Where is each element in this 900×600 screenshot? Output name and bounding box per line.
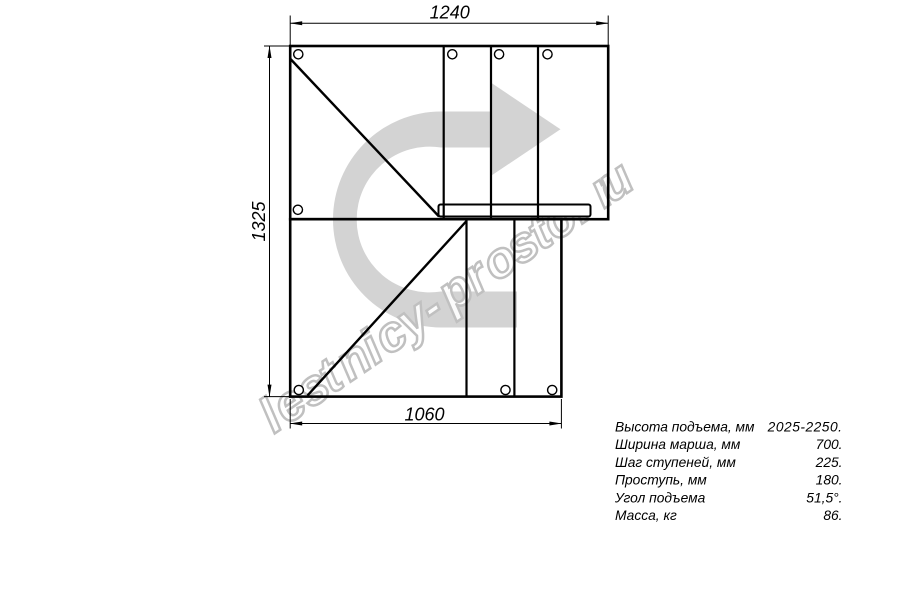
- svg-text:225.: 225.: [815, 455, 843, 470]
- svg-text:Угол подъема: Угол подъема: [614, 490, 706, 505]
- svg-text:1060: 1060: [404, 404, 444, 424]
- svg-text:lestnicy-prosto.ru: lestnicy-prosto.ru: [249, 149, 644, 443]
- svg-text:51,5°.: 51,5°.: [806, 490, 842, 505]
- svg-text:Масса, кг: Масса, кг: [615, 508, 677, 523]
- svg-text:Высота подъема, мм: Высота подъема, мм: [615, 420, 755, 435]
- svg-text:86.: 86.: [823, 508, 842, 523]
- svg-text:700.: 700.: [816, 437, 843, 452]
- svg-text:2025-2250.: 2025-2250.: [767, 420, 843, 435]
- svg-text:Шаг ступеней, мм: Шаг ступеней, мм: [615, 455, 736, 470]
- svg-text:1325: 1325: [249, 200, 269, 241]
- svg-text:1240: 1240: [430, 3, 470, 23]
- svg-text:Ширина марша, мм: Ширина марша, мм: [615, 437, 741, 452]
- svg-text:180.: 180.: [816, 473, 843, 488]
- svg-text:Проступь, мм: Проступь, мм: [615, 473, 707, 488]
